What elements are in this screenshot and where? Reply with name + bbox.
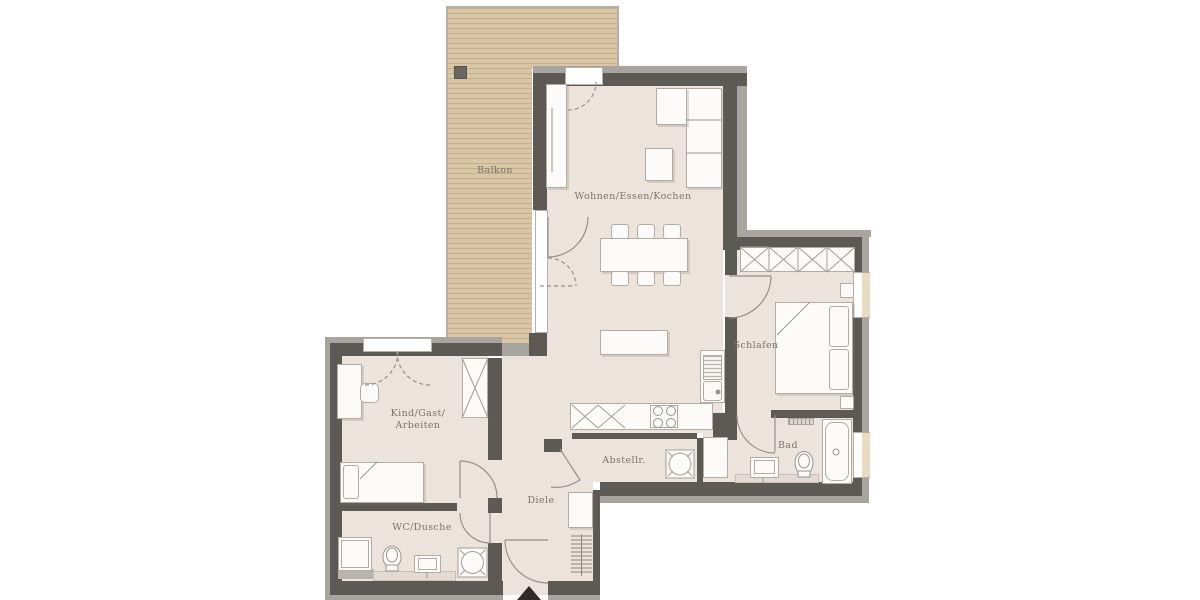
door-opening (488, 460, 502, 498)
wall-segment (725, 250, 737, 275)
wall-segment (548, 581, 600, 595)
wall-segment (725, 317, 737, 413)
room-label-abstellraum: Abstellr. (602, 455, 645, 467)
room-label-wohnen: Wohnen/Essen/Kochen (575, 191, 692, 203)
room-label-balkon: Balkon (477, 165, 513, 177)
wall-segment (853, 317, 862, 433)
wall-segment (502, 343, 532, 356)
window-kids-room (363, 338, 432, 352)
dining-table (600, 238, 688, 272)
washbasin-bowl (754, 460, 775, 474)
dish-drainer (703, 355, 722, 380)
room-label-wc-dusche: WC/Dusche (392, 522, 452, 534)
stove (650, 405, 678, 428)
desk (337, 364, 362, 419)
room-label-diele: Diele (528, 495, 555, 507)
nightstand (840, 283, 854, 298)
wall-segment (737, 230, 871, 237)
door-opening (725, 275, 737, 317)
room-label-schlafen: Schlafen (733, 340, 778, 352)
door-opening (457, 503, 488, 511)
wall-segment (713, 413, 737, 440)
coffee-table (645, 148, 673, 181)
wall-segment (600, 482, 862, 496)
floor-hall (502, 356, 546, 583)
tall-cabinet (546, 84, 567, 188)
room-label-line1: Kind/Gast/ (391, 408, 446, 419)
wardrobe-kids (462, 358, 488, 418)
kitchen-island (600, 330, 668, 355)
chair (663, 224, 681, 239)
wall-segment (529, 333, 547, 356)
room-label-kind-gast-arbeiten: Kind/Gast/ Arbeiten (391, 408, 446, 432)
chair (611, 224, 629, 239)
desk-chair (360, 383, 379, 403)
balcony-railing (617, 6, 619, 70)
chair (637, 224, 655, 239)
sofa-chaise (656, 88, 687, 125)
towel-radiator (788, 418, 814, 425)
wall-segment (600, 496, 869, 503)
door-opening (488, 513, 502, 543)
wall-segment (488, 498, 502, 513)
wall-segment (572, 433, 697, 439)
window-living-top (565, 67, 603, 85)
balcony-deck (448, 8, 617, 68)
door-opening (737, 408, 771, 418)
window-bedroom (853, 272, 870, 318)
floor-plan: Balkon Wohnen/Essen/Kochen Schlafen Kind… (0, 0, 1200, 600)
pillow (343, 465, 359, 499)
chair (611, 271, 629, 286)
bathtub-inner (825, 422, 849, 481)
entry-door-opening (503, 581, 548, 595)
shower-tray (341, 540, 369, 568)
balcony-deck (448, 68, 532, 345)
chair (637, 271, 655, 286)
balcony-door-glazing (535, 210, 548, 333)
shower-bath (703, 437, 728, 478)
wardrobe-bedroom (740, 247, 855, 272)
washbasin-bowl (418, 558, 437, 570)
hall-cabinet (568, 492, 593, 528)
pillow (829, 306, 849, 347)
nightstand (840, 396, 854, 409)
wall-segment (488, 358, 502, 460)
room-label-line2: Arbeiten (396, 420, 441, 431)
wall-segment (544, 439, 562, 452)
kitchen-counter (570, 403, 713, 430)
wall-segment (488, 543, 502, 581)
wall-segment (342, 503, 457, 511)
sofa (686, 88, 722, 188)
wall-segment (737, 66, 747, 237)
chair (663, 271, 681, 286)
wall-segment (548, 595, 600, 600)
wall-segment (325, 595, 503, 600)
wall-segment (723, 86, 737, 250)
wall-segment (330, 581, 503, 595)
kitchen-sink (703, 381, 722, 401)
window-frame (862, 433, 870, 477)
window-frame (862, 273, 870, 317)
wall-segment (533, 86, 547, 210)
pillow (829, 349, 849, 390)
room-label-bad: Bad (778, 440, 798, 452)
wall-segment (593, 490, 600, 583)
wall-segment (771, 410, 853, 418)
window-bath (853, 432, 870, 478)
balcony-drain (454, 66, 467, 79)
